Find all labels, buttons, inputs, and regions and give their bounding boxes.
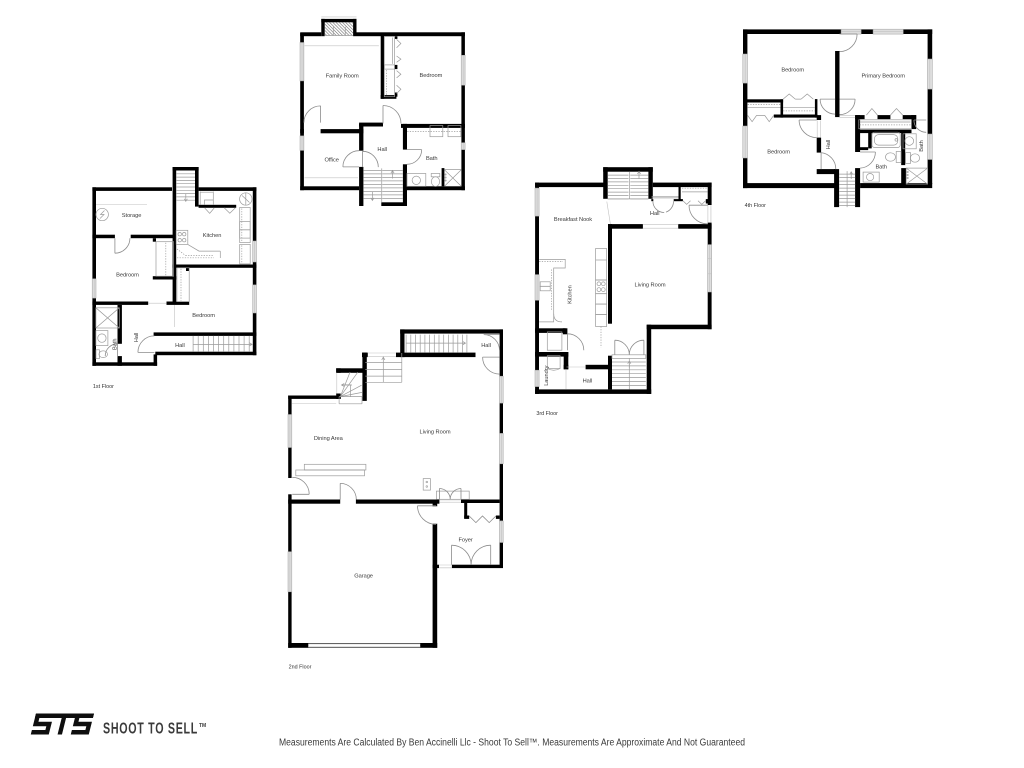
svg-text:1st Floor: 1st Floor bbox=[93, 384, 114, 390]
svg-text:Living Room: Living Room bbox=[419, 429, 450, 435]
svg-text:Office: Office bbox=[324, 158, 338, 164]
svg-text:Hall: Hall bbox=[377, 147, 387, 153]
svg-text:Hall: Hall bbox=[175, 343, 185, 349]
svg-text:Primary Bedroom: Primary Bedroom bbox=[861, 73, 905, 79]
svg-text:Hall: Hall bbox=[481, 343, 491, 349]
svg-text:Hall: Hall bbox=[826, 140, 832, 150]
svg-text:Bath: Bath bbox=[113, 339, 119, 351]
svg-text:Bedroom: Bedroom bbox=[781, 68, 804, 74]
svg-text:Dining Area: Dining Area bbox=[314, 436, 344, 442]
svg-text:Bedroom: Bedroom bbox=[420, 73, 443, 79]
svg-text:Bedroom: Bedroom bbox=[767, 150, 790, 156]
svg-text:Hall: Hall bbox=[583, 378, 593, 384]
svg-text:Bath: Bath bbox=[426, 156, 438, 162]
svg-text:2nd Floor: 2nd Floor bbox=[289, 665, 312, 671]
svg-text:SHOOT TO SELL: SHOOT TO SELL bbox=[103, 721, 198, 738]
svg-text:Storage: Storage bbox=[122, 213, 142, 219]
svg-text:Measurements Are Calculated By: Measurements Are Calculated By Ben Accin… bbox=[279, 738, 745, 749]
svg-text:Living Room: Living Room bbox=[634, 282, 665, 288]
svg-text:Kitchen: Kitchen bbox=[567, 285, 573, 304]
svg-text:Family Room: Family Room bbox=[326, 74, 359, 80]
svg-text:Bath: Bath bbox=[875, 164, 887, 170]
svg-text:Kitchen: Kitchen bbox=[203, 233, 222, 239]
svg-text:Hall: Hall bbox=[134, 333, 140, 343]
svg-text:Laundry: Laundry bbox=[544, 365, 550, 385]
svg-text:Foyer: Foyer bbox=[458, 538, 472, 544]
svg-text:Garage: Garage bbox=[354, 573, 373, 579]
svg-text:TM: TM bbox=[199, 723, 206, 729]
svg-text:Bedroom: Bedroom bbox=[116, 273, 139, 279]
svg-text:Hall: Hall bbox=[650, 211, 660, 217]
svg-text:Bath: Bath bbox=[919, 140, 925, 152]
svg-text:Bedroom: Bedroom bbox=[192, 313, 215, 319]
svg-text:Breakfast Nook: Breakfast Nook bbox=[554, 217, 592, 223]
svg-text:3rd Floor: 3rd Floor bbox=[536, 411, 558, 417]
svg-text:4th Floor: 4th Floor bbox=[745, 203, 766, 209]
